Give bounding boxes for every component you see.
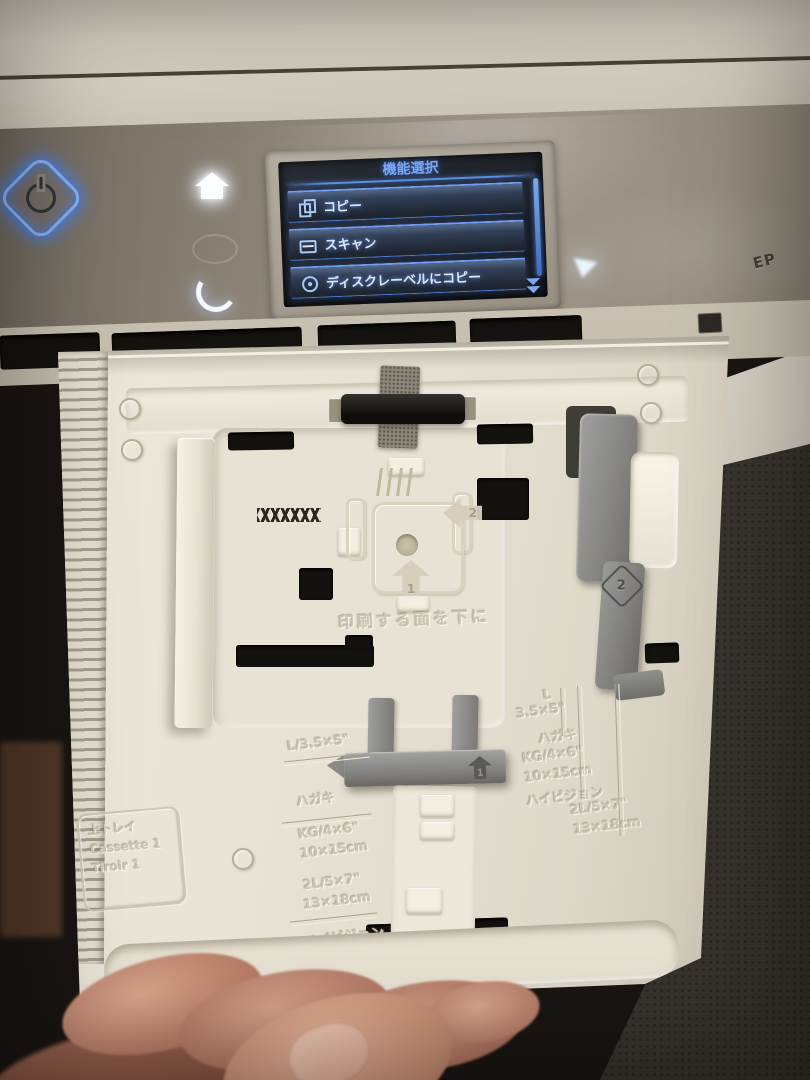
menu-item-scan[interactable]: スキャン [289,220,525,261]
lcd-bezel: 機能選択 コピー スキャン ディスクレーベルにコピー [265,140,562,320]
size-label: 13×18cm [302,890,372,913]
tray-cutout [477,478,529,520]
menu-item-label: コピー [323,195,363,216]
screw-mark [232,848,254,870]
size-rule [560,688,567,736]
home-icon [195,172,229,186]
scrollbar[interactable] [533,178,542,276]
size-label: 2L/5×7" [302,872,361,894]
serration-teeth [257,508,321,522]
menu-item-label: ディスクレーベルにコピー [326,266,482,291]
left-guide-rail [174,438,215,728]
lcd-screen[interactable]: 機能選択 コピー スキャン ディスクレーベルにコピー [278,152,548,307]
size-label: 3.5×5" [515,701,566,722]
tray-cutout [299,568,333,600]
size-rule [614,684,624,836]
size-label: L/3.5×5" [286,732,350,755]
size-label: KG/4×6" [521,744,584,766]
function-menu: コピー スキャン ディスクレーベルにコピー [287,182,526,299]
copy-icon [298,198,315,215]
plastic-tab [420,795,454,817]
pick-roller [341,394,465,424]
scan-icon [299,236,316,253]
tray-cutout [345,635,373,649]
size-label: L [542,688,552,704]
screw-mark [119,398,141,420]
power-button[interactable] [0,154,85,242]
tray-cutout [477,424,533,445]
guide-handle-recess [629,452,679,569]
load-icon-bar [346,498,366,560]
tray-cutout [228,431,294,450]
latch-icon [697,312,722,333]
menu-item-label: スキャン [324,232,377,253]
paper-stack-lines [376,468,416,496]
tray-cutout [645,642,680,663]
plastic-tab [420,822,454,840]
printer-photo: EP 機能選択 コピー スキャン ディスクレーベルに [0,0,810,1080]
screw-mark [637,364,659,386]
scroll-down-icon[interactable] [525,278,542,295]
cassette-label: 上トレイ Cassette 1 Tiroir 1 [76,806,187,913]
side-paper-guide-foot [613,669,666,701]
size-label: ハガキ [295,787,336,811]
menu-item-disc-label-copy[interactable]: ディスクレーベルにコピー [290,258,526,299]
size-label: ハガキ [537,724,578,748]
disc-icon [301,274,318,291]
background-floor-patch [0,742,62,937]
power-icon [26,183,56,213]
size-label: 10×15cm [299,839,369,862]
screw-mark [640,402,662,424]
size-rule [577,686,586,798]
tray-hole [396,534,418,556]
menu-item-copy[interactable]: コピー [287,182,523,223]
home-button[interactable] [190,172,234,212]
plastic-tab [406,888,442,914]
back-button[interactable] [192,268,239,315]
unlit-button-outline [192,234,238,264]
status-light [571,258,598,280]
screw-mark [121,439,143,461]
size-label: 13×18cm [572,815,642,838]
